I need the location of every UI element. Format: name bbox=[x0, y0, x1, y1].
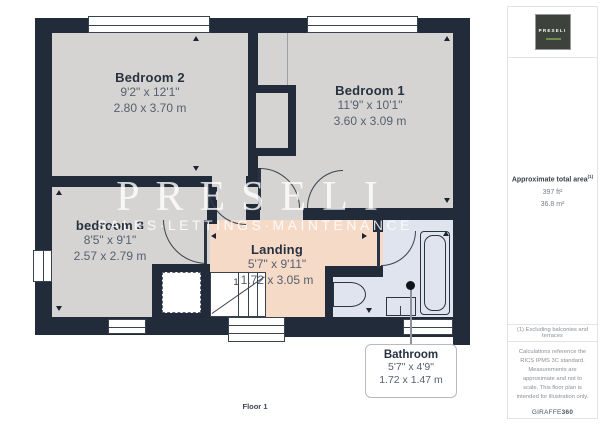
room-dims-imperial: 9'2" x 12'1" bbox=[75, 85, 225, 101]
window-pane-line bbox=[89, 25, 209, 26]
total-area-imperial: 397 ft² bbox=[543, 189, 563, 196]
brand-name: GIRAFFE bbox=[532, 409, 562, 416]
window bbox=[108, 319, 146, 334]
total-area-section: Approximate total area(1) 397 ft² 36.8 m… bbox=[508, 58, 597, 325]
wall-edge-line bbox=[287, 33, 288, 85]
dimension-tick bbox=[211, 233, 216, 239]
dimension-tick bbox=[193, 166, 199, 171]
logo-underline bbox=[546, 38, 561, 40]
chimney-breast bbox=[248, 85, 296, 156]
room-dims-metric: 2.80 x 3.70 m bbox=[75, 101, 225, 117]
room-dims-imperial: 11'9" x 10'1" bbox=[290, 98, 450, 114]
landing-label: Landing 5'7" x 9'11" 1.72 x 3.05 m bbox=[207, 242, 347, 288]
preseli-logo: PRESELI bbox=[535, 14, 571, 50]
room-name: Bedroom 1 bbox=[290, 83, 450, 98]
room-dims-imperial: 5'7" x 4'9" bbox=[366, 361, 456, 374]
bathtub-inner bbox=[424, 235, 446, 311]
room-dims-metric: 3.60 x 3.09 m bbox=[290, 114, 450, 130]
floor-plan-page: 1 Bedroom 2 9'2 bbox=[0, 0, 600, 425]
bathroom-label: Bathroom 5'7" x 4'9" 1.72 x 1.47 m bbox=[365, 344, 457, 398]
stair-tread bbox=[228, 333, 285, 334]
window-pane-line bbox=[109, 327, 145, 328]
window-pane-line bbox=[308, 25, 417, 26]
room-name: Bedroom 2 bbox=[75, 70, 225, 85]
dimension-tick bbox=[366, 308, 372, 313]
room-dims-metric: 2.57 x 2.79 m bbox=[35, 249, 185, 265]
window bbox=[307, 16, 418, 33]
room-dims-imperial: 5'7" x 9'11" bbox=[207, 257, 347, 273]
logo-section: PRESELI bbox=[508, 7, 597, 58]
stairs-lower-treads bbox=[228, 317, 285, 342]
dimension-tick bbox=[193, 36, 199, 41]
total-area-title: Approximate total area(1) bbox=[512, 174, 593, 183]
wall-segment bbox=[453, 18, 470, 345]
room-dims-metric: 1.72 x 1.47 m bbox=[366, 374, 456, 387]
bathroom-leader-dot bbox=[406, 281, 415, 290]
bedroom1-label: Bedroom 1 11'9" x 10'1" 3.60 x 3.09 m bbox=[290, 83, 450, 129]
floor-name-label: Floor 1 bbox=[205, 402, 305, 411]
toilet-line bbox=[400, 306, 401, 316]
disclaimer-text: Calculations reference the RICS IPMS 3C … bbox=[517, 349, 589, 400]
door-leaf bbox=[377, 230, 380, 268]
bathtub bbox=[420, 231, 450, 315]
dimension-tick bbox=[444, 36, 450, 41]
stair-tread bbox=[228, 325, 285, 326]
brand-suffix: 360 bbox=[562, 409, 574, 416]
bathroom-leader-line bbox=[410, 289, 412, 345]
watermark-tagline: SALES·LETTINGS·MAINTENANCE bbox=[60, 217, 450, 233]
room-dims-imperial: 8'5" x 9'1" bbox=[35, 233, 185, 249]
watermark-brand: PRESELI bbox=[60, 176, 450, 218]
footnote: (1) Excluding balconies and terraces bbox=[508, 325, 597, 342]
giraffe360-brand: GIRAFFE360 bbox=[515, 408, 590, 418]
info-sidebar: PRESELI Approximate total area(1) 397 ft… bbox=[507, 6, 598, 419]
wall-segment bbox=[248, 18, 258, 92]
room-dims-metric: 1.72 x 3.05 m bbox=[207, 273, 347, 289]
total-area-metric: 36.8 m² bbox=[541, 201, 565, 208]
toilet bbox=[386, 297, 416, 316]
footnote-marker: (1) bbox=[588, 174, 594, 179]
total-area-title-text: Approximate total area bbox=[512, 177, 588, 184]
logo-text: PRESELI bbox=[536, 28, 570, 33]
dimension-tick bbox=[362, 233, 367, 239]
room-name: Landing bbox=[207, 242, 347, 257]
built-in-cupboard bbox=[162, 272, 201, 313]
dimension-tick bbox=[56, 306, 62, 311]
disclaimer: Calculations reference the RICS IPMS 3C … bbox=[508, 342, 597, 418]
room-name: Bathroom bbox=[366, 349, 456, 361]
bedroom2-label: Bedroom 2 9'2" x 12'1" 2.80 x 3.70 m bbox=[75, 70, 225, 116]
window bbox=[88, 16, 210, 33]
